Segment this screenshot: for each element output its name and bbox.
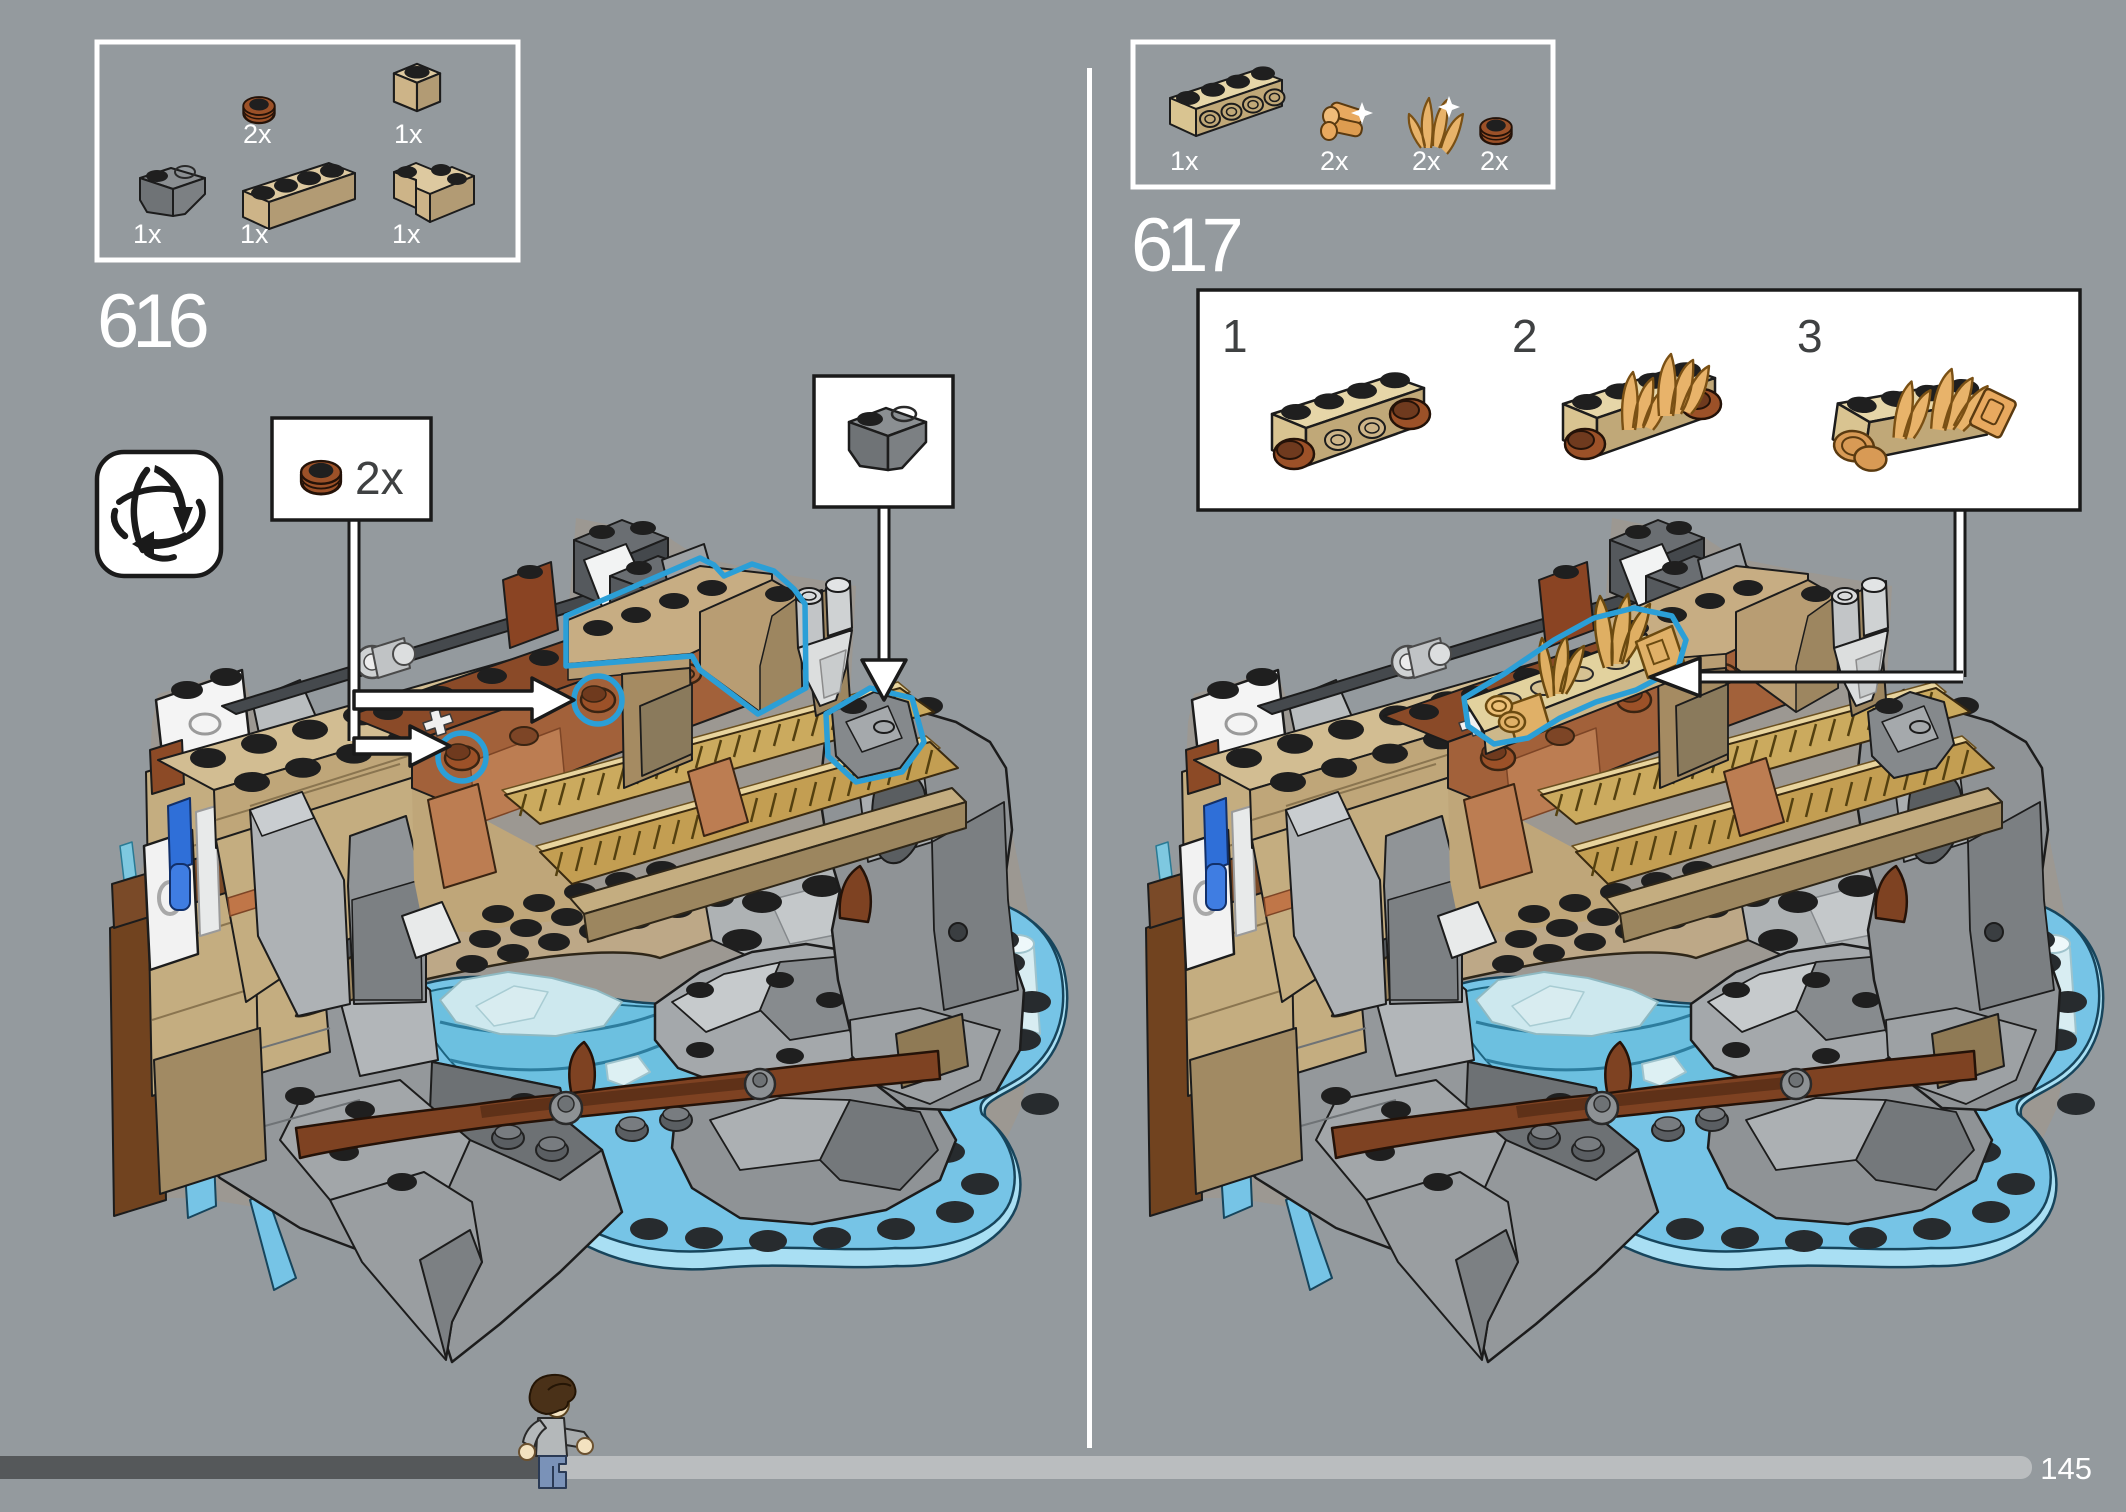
svg-text:2x: 2x xyxy=(1412,146,1441,176)
svg-text:2x: 2x xyxy=(1480,146,1509,176)
svg-text:1: 1 xyxy=(1222,310,1248,362)
svg-text:616: 616 xyxy=(97,279,207,364)
svg-text:145: 145 xyxy=(2040,1451,2092,1486)
svg-text:1x: 1x xyxy=(394,119,423,149)
svg-text:3: 3 xyxy=(1797,310,1823,362)
svg-text:1x: 1x xyxy=(1170,146,1199,176)
svg-text:2x: 2x xyxy=(243,119,272,149)
svg-text:2: 2 xyxy=(1512,310,1538,362)
svg-text:1x: 1x xyxy=(133,219,162,249)
svg-text:617: 617 xyxy=(1131,203,1241,288)
svg-text:2x: 2x xyxy=(1320,146,1349,176)
svg-text:1x: 1x xyxy=(240,219,269,249)
svg-text:1x: 1x xyxy=(392,219,421,249)
svg-text:2x: 2x xyxy=(355,452,404,504)
